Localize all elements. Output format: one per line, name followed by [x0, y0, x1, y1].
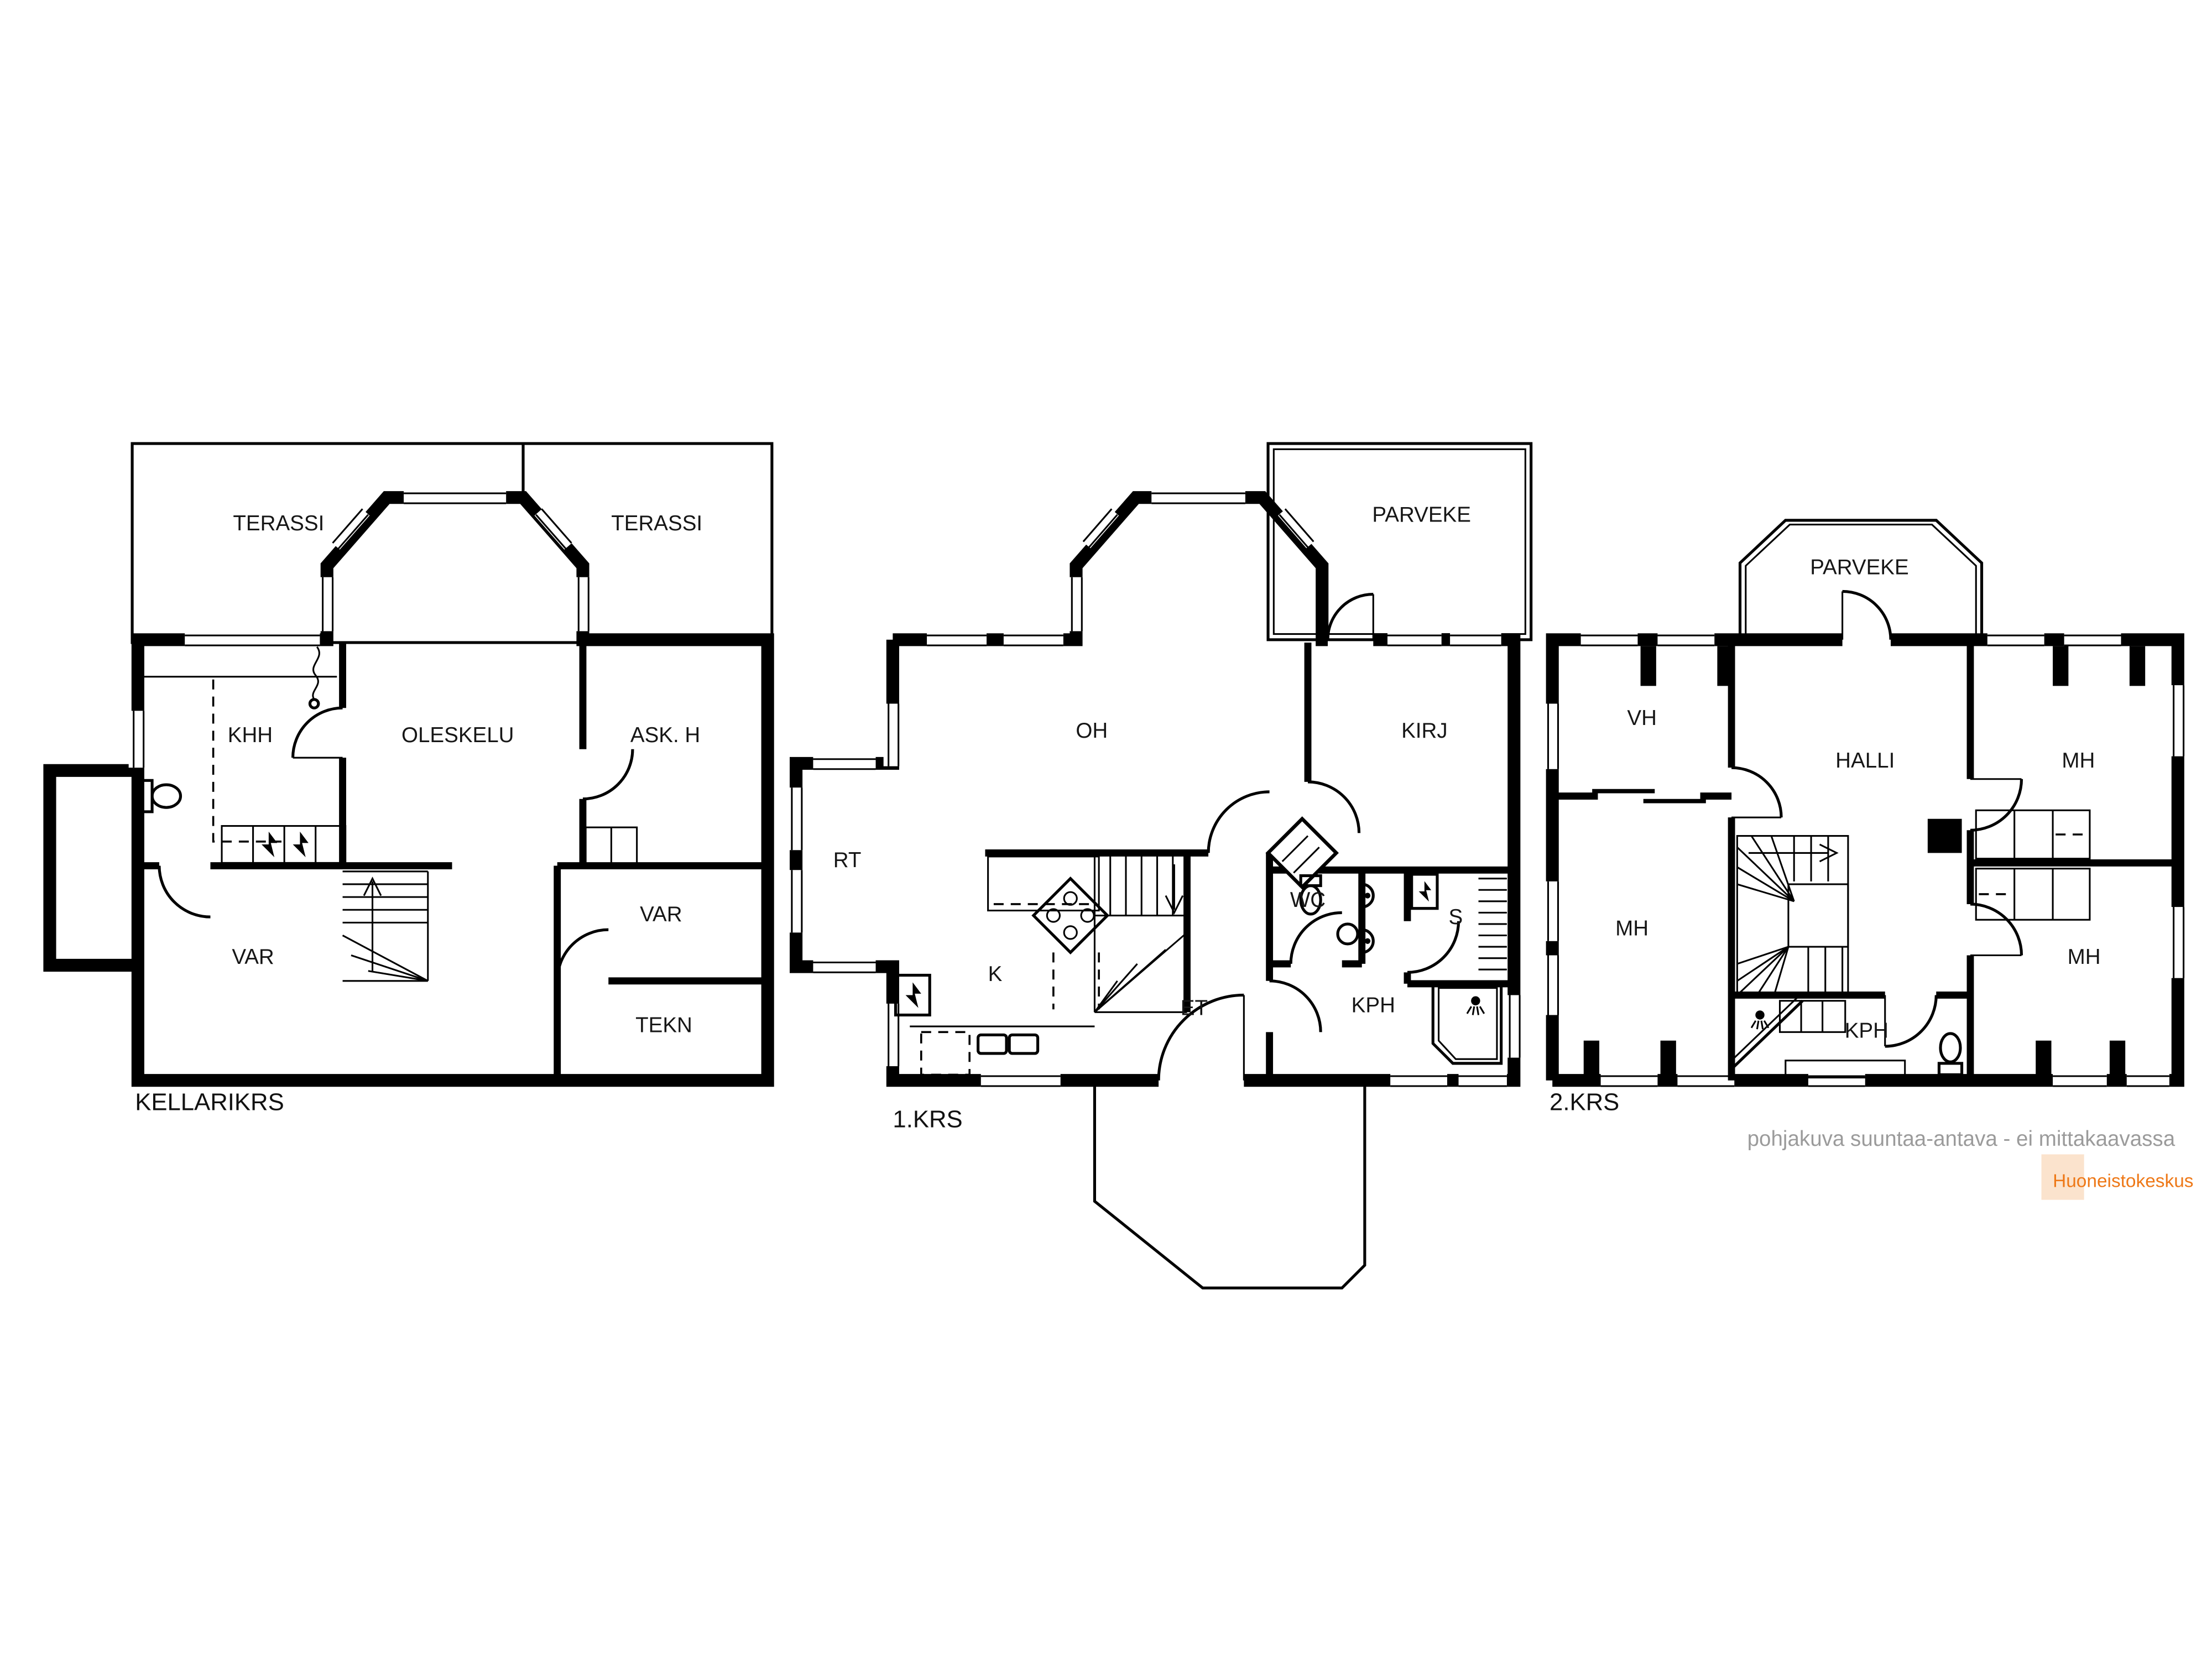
floor-label-second: 2.KRS — [1550, 1089, 1619, 1116]
room-label-terassi-right: TERASSI — [611, 512, 702, 535]
room-label-vh: VH — [1627, 706, 1657, 730]
room-label-oh: OH — [1076, 719, 1108, 743]
disclaimer-text: pohjakuva suuntaa-antava - ei mittakaava… — [1747, 1127, 2176, 1151]
room-label-et: ET — [1181, 996, 1208, 1020]
room-label-ask-h: ASK. H — [630, 723, 700, 747]
room-label-kph-2: KPH — [1845, 1019, 1888, 1043]
room-label-kph-1: KPH — [1352, 993, 1395, 1017]
room-label-var-left: VAR — [232, 945, 274, 969]
floorplan-image: TERASSI TERASSI KHH OLESKELU ASK. H VAR … — [0, 0, 2212, 1659]
floor-label-first: 1.KRS — [893, 1106, 962, 1133]
floor-label-basement: KELLARIKRS — [135, 1089, 284, 1116]
room-label-parveke-2: PARVEKE — [1810, 556, 1909, 580]
room-label-halli: HALLI — [1835, 749, 1895, 773]
room-label-k: K — [988, 962, 1003, 986]
chimney — [1928, 819, 1962, 853]
room-label-tekn: TEKN — [635, 1013, 692, 1037]
room-label-kirj: KIRJ — [1401, 719, 1448, 743]
page-background — [0, 0, 2212, 1659]
room-label-mh-bottom: MH — [2068, 945, 2101, 969]
room-label-terassi-left: TERASSI — [233, 512, 324, 535]
brand-logo-text: Huoneistokeskus — [2053, 1171, 2193, 1192]
room-label-mh-left: MH — [1615, 917, 1648, 941]
room-label-oleskelu: OLESKELU — [401, 723, 514, 747]
room-label-s: S — [1449, 905, 1463, 929]
room-label-parveke-1: PARVEKE — [1372, 503, 1471, 526]
room-label-var-right: VAR — [640, 902, 682, 926]
room-label-wc: WC — [1290, 888, 1326, 912]
room-label-khh: KHH — [228, 723, 273, 747]
room-label-rt: RT — [833, 848, 862, 872]
room-label-mh-top: MH — [2062, 749, 2095, 773]
